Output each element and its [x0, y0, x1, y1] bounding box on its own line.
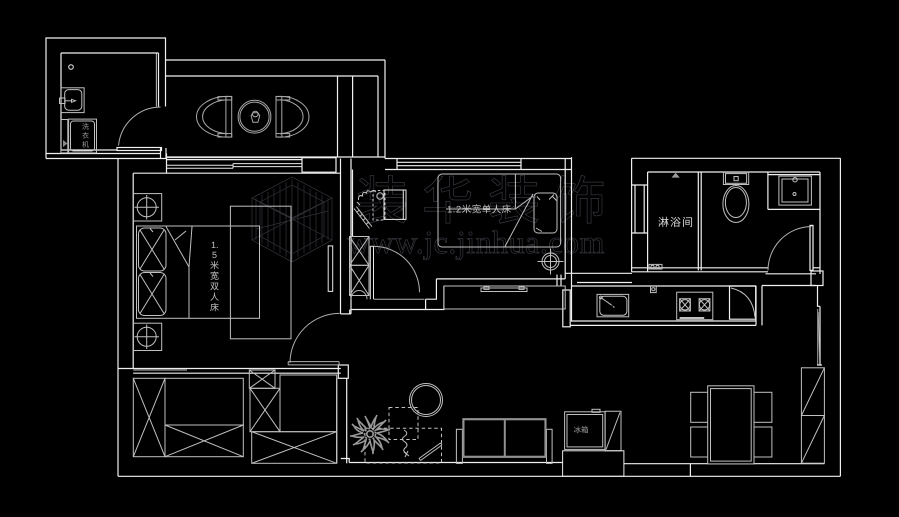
svg-text:www.jc.jinhua.com: www.jc.jinhua.com [347, 224, 605, 260]
svg-text:1.2米宽单人床: 1.2米宽单人床 [447, 204, 512, 216]
svg-text:洗衣机: 洗衣机 [82, 123, 89, 149]
svg-text:装华装饰: 装华装饰 [356, 174, 620, 231]
svg-text:冰箱: 冰箱 [574, 426, 589, 435]
svg-text:淋浴间: 淋浴间 [658, 216, 694, 229]
